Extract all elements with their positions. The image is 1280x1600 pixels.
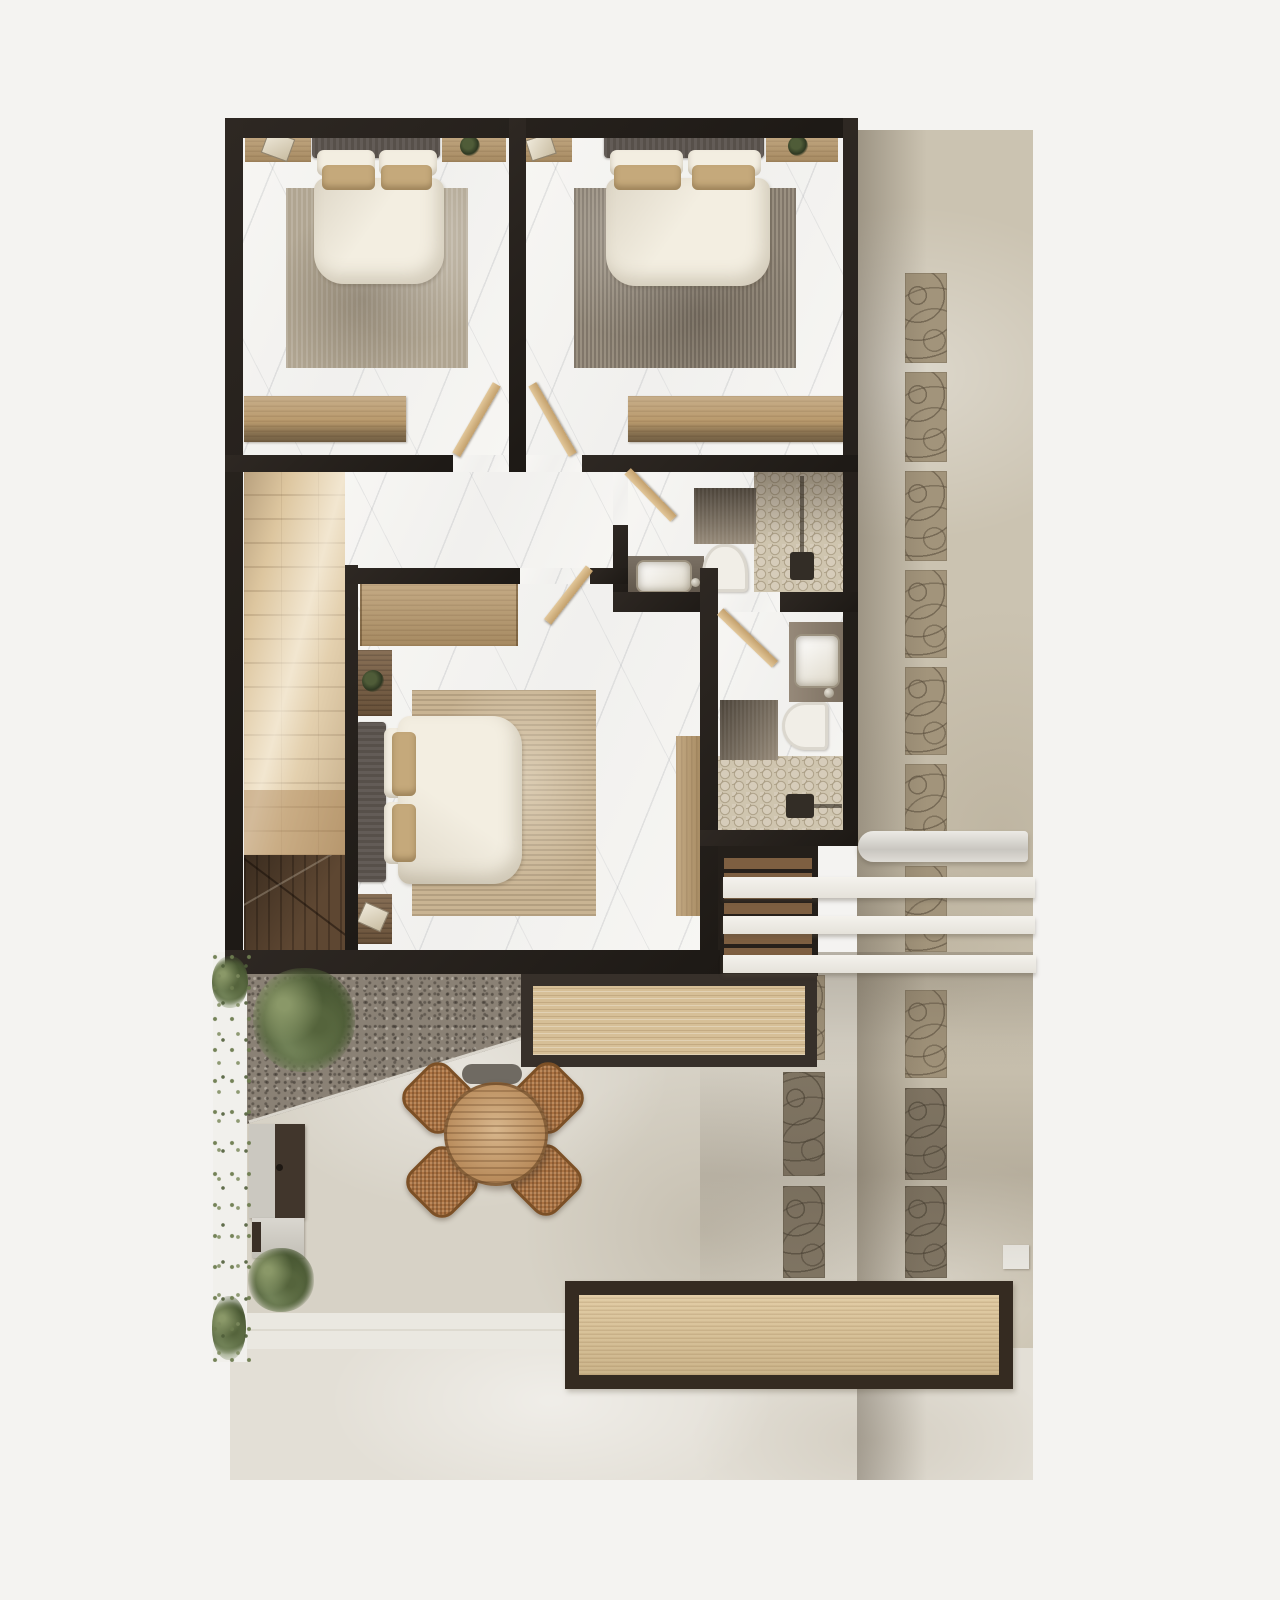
paver-path-segment [905, 667, 947, 755]
wall-bedroom-3-left [345, 565, 358, 974]
shower-tile-bathroom-2 [718, 756, 843, 832]
wall-bedroom-3-top-b [590, 568, 628, 584]
wall-bedroom-divider [509, 118, 526, 472]
bed-1-duvet [314, 178, 444, 284]
deck-table [521, 974, 817, 1067]
patio-bench [462, 1064, 522, 1084]
paver-path-segment [783, 1186, 825, 1278]
drain-dot [691, 578, 700, 587]
wall-left [225, 118, 243, 974]
bedroom-1-dresser [244, 396, 406, 442]
bedroom-2-dresser [628, 396, 843, 442]
paver-path-segment [905, 570, 947, 658]
paver-path-segment [905, 990, 947, 1078]
bed-2-pillow-beige [692, 165, 755, 190]
shower-arm [812, 804, 842, 808]
vanity-sink [636, 560, 692, 593]
wall-bedroom-3-right [700, 568, 718, 974]
shrub-small [212, 956, 248, 1008]
bed-1-pillow-beige [381, 165, 432, 190]
bbq-grill [249, 1124, 305, 1218]
plant-decor [362, 670, 384, 692]
wall-mid-band-right [582, 455, 858, 472]
doorway-floor [718, 592, 780, 612]
shower-arm [800, 476, 804, 554]
utility-box [1003, 1245, 1029, 1269]
paver-path-segment [905, 1186, 947, 1278]
plant-decor [788, 136, 808, 156]
vanity-sink [794, 634, 840, 688]
shrub-small [212, 1296, 246, 1360]
bed-3-pillow-beige [392, 804, 416, 862]
pergola-beam [723, 955, 1036, 973]
wall-bathrooms-divider-b [780, 592, 858, 612]
wall-bathroom-2-bottom [700, 830, 858, 846]
bed-3-headboard [356, 722, 386, 882]
pergola-beam [723, 916, 1035, 934]
bedroom-3-wardrobe [360, 584, 518, 646]
paver-path-segment [905, 273, 947, 363]
bed-3-pillow-beige [392, 732, 416, 796]
walkway-strip [247, 1313, 565, 1349]
doorway-floor [613, 472, 628, 528]
toilet [782, 702, 828, 750]
shower-head [790, 552, 814, 580]
paver-path-segment [905, 471, 947, 561]
wall-mid-band-left [225, 455, 453, 472]
paver-path-segment [783, 1072, 825, 1176]
hallway-floor [345, 472, 613, 572]
roof-slope [244, 855, 345, 952]
bed-1-pillow-beige [322, 165, 375, 190]
shower-head [786, 794, 814, 818]
planter-bench [565, 1281, 1013, 1389]
wall-bedroom-3-top-a [345, 568, 520, 584]
floor-plan-render [0, 0, 1280, 1600]
paver-path-segment [905, 372, 947, 462]
shrub [253, 968, 355, 1072]
shrub [248, 1248, 314, 1312]
bbq-handle [252, 1222, 261, 1252]
paver-path-segment [905, 1088, 947, 1180]
bed-2-pillow-beige [614, 165, 681, 190]
doorway-floor [526, 455, 582, 472]
doorway-floor [453, 455, 509, 472]
rolled-awning [858, 831, 1028, 862]
wall-top [225, 118, 858, 138]
bed-2-duvet [606, 178, 770, 286]
bed-3-duvet [398, 716, 522, 884]
wall-right [843, 118, 858, 846]
round-dining-table [444, 1082, 548, 1186]
bedroom-3-desk [676, 736, 702, 916]
bbq-knob [276, 1164, 283, 1171]
drain-dot [824, 688, 834, 698]
pergola-beam [723, 877, 1035, 898]
bath-mat [720, 700, 778, 760]
plant-decor [460, 136, 480, 156]
bath-mat [694, 488, 756, 544]
